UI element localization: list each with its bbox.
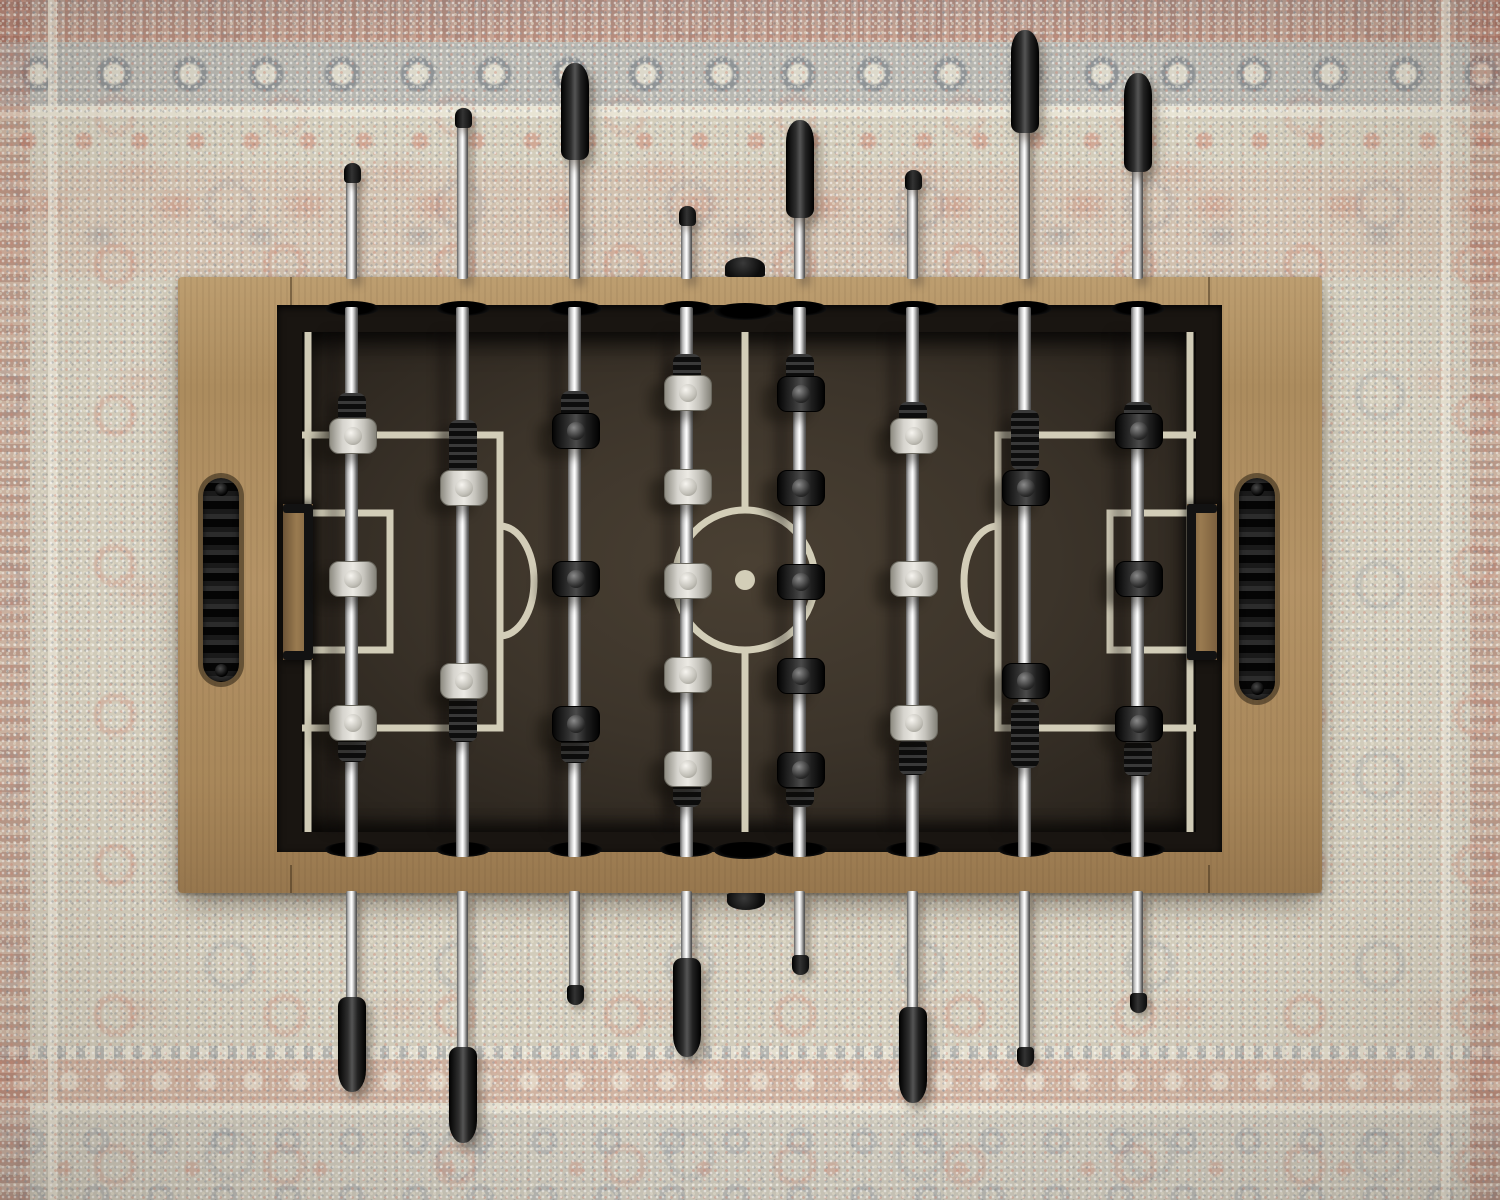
rod-4-top-segment[interactable] (681, 220, 692, 279)
rod-7-end-cap[interactable] (1017, 1047, 1034, 1067)
rod-7-handle[interactable] (1011, 30, 1039, 133)
rod-3-end-cap[interactable] (567, 985, 584, 1005)
rod-8-top-segment[interactable] (1132, 166, 1143, 279)
rod-6-end-cap[interactable] (905, 170, 922, 190)
rod-7-bottom-segment[interactable] (1019, 891, 1030, 1053)
rod-7-top-segment[interactable] (1019, 127, 1030, 279)
rod-1-end-cap[interactable] (344, 163, 361, 183)
rods-layer (0, 0, 1500, 1200)
rod-6-handle[interactable] (899, 1007, 927, 1103)
rod-5-end-cap[interactable] (792, 955, 809, 975)
rod-4-handle[interactable] (673, 958, 701, 1057)
rod-6-top-segment[interactable] (907, 184, 918, 279)
rod-5-bottom-segment[interactable] (794, 891, 805, 961)
rod-2-handle[interactable] (449, 1047, 477, 1143)
rod-1-top-segment[interactable] (346, 177, 357, 279)
rod-2-bottom-segment[interactable] (457, 891, 468, 1053)
rod-1-handle[interactable] (338, 997, 366, 1092)
rod-2-end-cap[interactable] (455, 108, 472, 128)
rod-5-handle[interactable] (786, 120, 814, 218)
rod-3-top-segment[interactable] (569, 154, 580, 279)
rod-8-bottom-segment[interactable] (1132, 891, 1143, 999)
rod-1-bottom-segment[interactable] (346, 891, 357, 1003)
rod-3-handle[interactable] (561, 63, 589, 160)
rod-4-end-cap[interactable] (679, 206, 696, 226)
rod-2-top-segment[interactable] (457, 122, 468, 279)
rod-5-top-segment[interactable] (794, 212, 805, 279)
rod-8-handle[interactable] (1124, 73, 1152, 172)
rod-8-end-cap[interactable] (1130, 993, 1147, 1013)
rod-4-bottom-segment[interactable] (681, 891, 692, 964)
rod-3-bottom-segment[interactable] (569, 891, 580, 991)
scene (0, 0, 1500, 1200)
rod-6-bottom-segment[interactable] (907, 891, 918, 1013)
